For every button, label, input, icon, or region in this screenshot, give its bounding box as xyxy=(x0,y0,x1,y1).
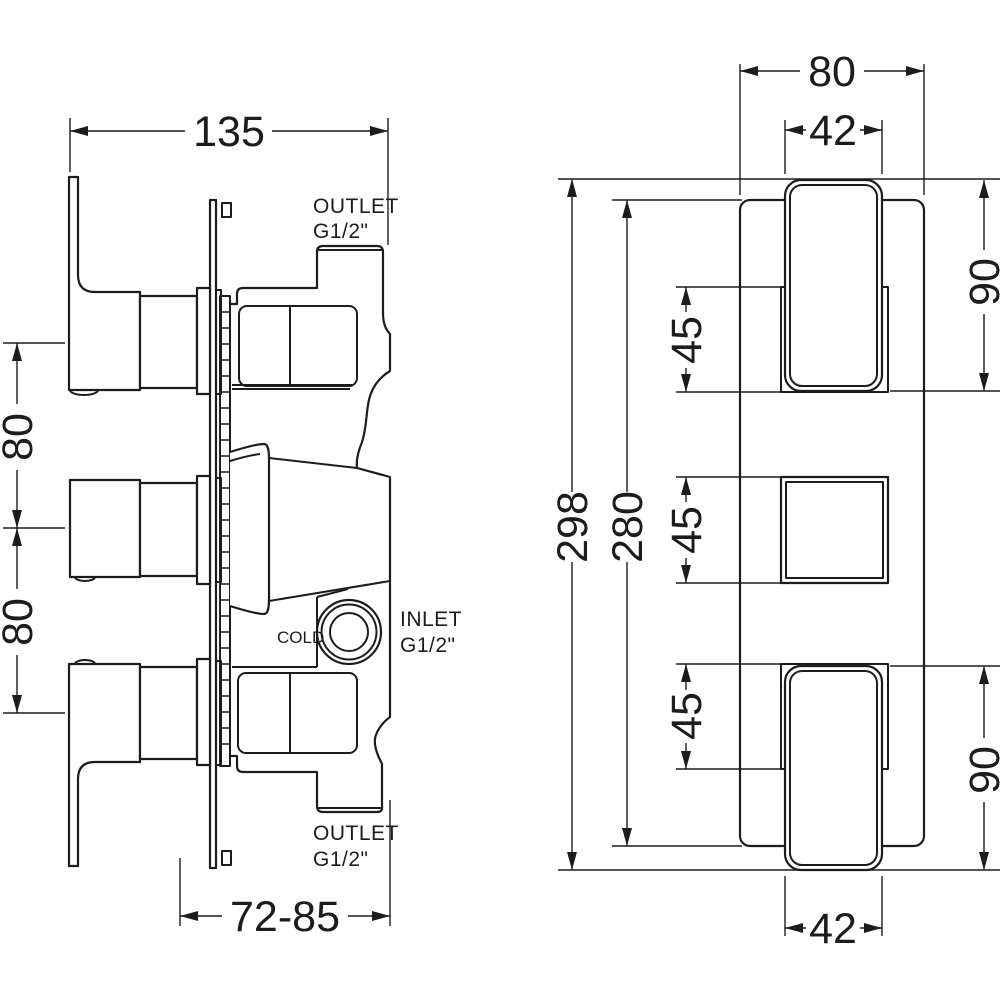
inlet-port-outer-ring xyxy=(317,600,381,664)
dim-plate-width-80-text: 80 xyxy=(808,48,856,96)
top-lever-handle xyxy=(69,177,140,390)
middle-knob-flange xyxy=(197,476,210,584)
technical-drawing-page: 135 80 80 72-85 OUTLET G1/2" xyxy=(0,0,1000,1000)
dim-cutout-bottom-45-text: 45 xyxy=(663,692,711,740)
inlet-label-line1: INLET xyxy=(400,608,462,631)
outlet-bottom-label-line2: G1/2" xyxy=(313,848,368,871)
top-handle-flange xyxy=(197,288,210,394)
dim-depth-72-85-text: 72-85 xyxy=(230,893,340,941)
dim-cutout-top-45: 45 xyxy=(663,287,781,392)
upper-cartridge xyxy=(239,306,357,386)
body-edge-upper xyxy=(269,458,357,468)
lower-cartridge xyxy=(238,673,357,753)
dim-knob-width-top-42-text: 42 xyxy=(809,107,857,155)
front-view: 80 42 90 298 xyxy=(549,48,1000,953)
cold-label: COLD xyxy=(277,628,324,647)
bottom-knob-front xyxy=(785,666,882,870)
side-view: 135 80 80 72-85 OUTLET G1/2" xyxy=(0,108,462,941)
dim-knob-height-top-90-text: 90 xyxy=(961,258,1000,306)
bottom-handle-flange xyxy=(197,659,210,765)
dim-cutout-middle-45-text: 45 xyxy=(663,506,711,554)
dim-spacing-80-upper: 80 xyxy=(0,343,65,528)
dim-knob-height-bottom-90: 90 xyxy=(890,666,1000,870)
fixing-lug-bottom xyxy=(222,851,231,865)
outlet-top-label-line1: OUTLET xyxy=(313,195,399,218)
thermostat-cone xyxy=(230,444,269,614)
bottom-handle-stem xyxy=(140,667,197,759)
middle-knob-front xyxy=(781,477,888,583)
middle-knob xyxy=(70,480,140,577)
top-handle-backnut xyxy=(216,290,221,394)
dim-spacing-80-lower: 80 xyxy=(0,528,65,713)
dim-spacing-80-lower-text: 80 xyxy=(0,598,42,646)
dim-plate-height-280-text: 280 xyxy=(604,491,652,563)
dim-knob-width-bottom-42: 42 xyxy=(785,876,882,953)
bottom-lever-handle xyxy=(69,664,140,866)
dim-width-135-text: 135 xyxy=(193,108,265,156)
middle-knob-front-inner xyxy=(786,482,883,578)
top-handle-stem xyxy=(140,296,197,388)
valve-drawing-svg: 135 80 80 72-85 OUTLET G1/2" xyxy=(0,0,1000,1000)
dim-cutout-middle-45: 45 xyxy=(663,477,781,583)
dim-knob-width-bottom-42-text: 42 xyxy=(809,905,857,953)
dim-overall-298-text: 298 xyxy=(549,491,597,563)
dim-overall-298: 298 xyxy=(549,179,597,870)
dim-spacing-80-upper-text: 80 xyxy=(0,413,42,461)
middle-knob-backnut xyxy=(216,478,221,582)
dim-cutout-bottom-45: 45 xyxy=(663,664,781,769)
dim-cutout-top-45-text: 45 xyxy=(663,316,711,364)
outlet-bottom-label-line1: OUTLET xyxy=(313,822,399,845)
inlet-label-line2: G1/2" xyxy=(400,634,455,657)
outlet-top-label-line2: G1/2" xyxy=(313,220,368,243)
bottom-handle-backnut xyxy=(216,661,221,765)
middle-knob-stem xyxy=(140,483,197,576)
body-edge-lower xyxy=(269,581,390,601)
dim-knob-height-bottom-90-text: 90 xyxy=(961,746,1000,794)
dim-knob-height-top-90: 90 xyxy=(890,180,1000,391)
top-knob-front xyxy=(785,180,882,391)
dim-knob-width-top-42: 42 xyxy=(785,107,882,174)
fixing-lug-top xyxy=(222,203,231,217)
